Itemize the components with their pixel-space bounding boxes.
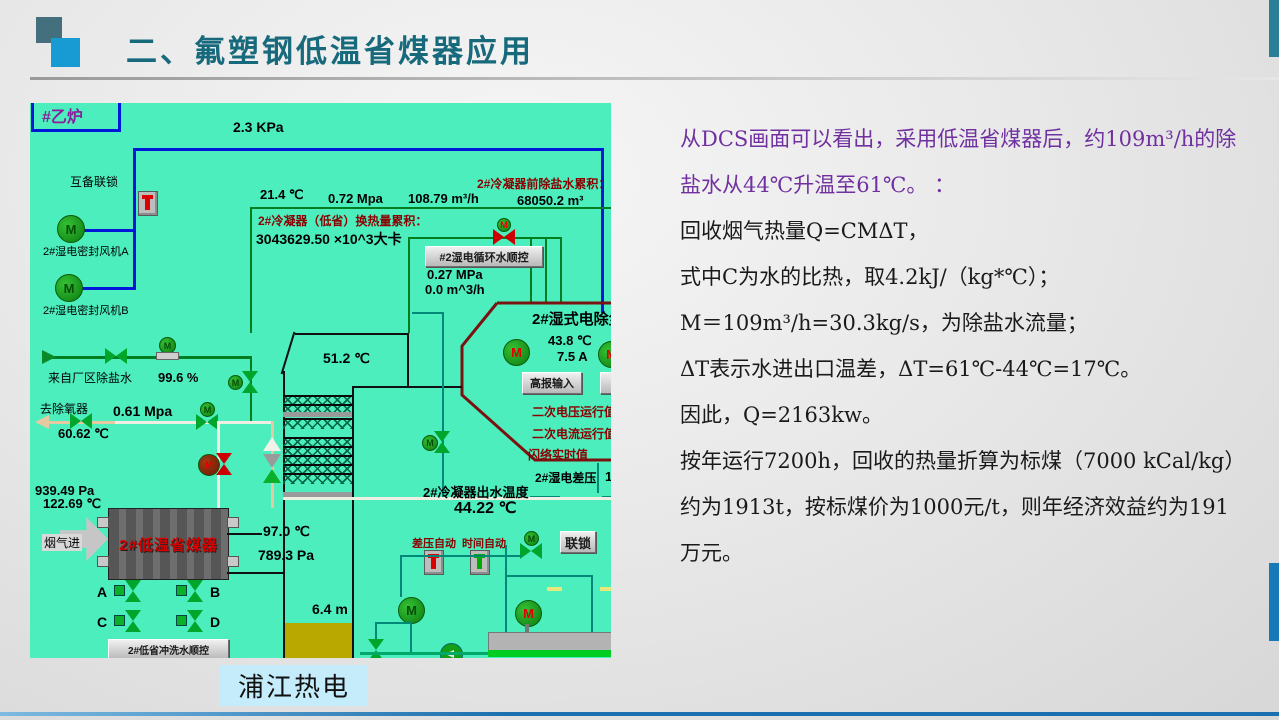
flow-108: 108.79 m³/h	[408, 191, 479, 206]
inlet-label: 来自厂区除盐水	[48, 369, 132, 386]
pressure-072: 0.72 Mpa	[328, 191, 383, 206]
pipe-green	[250, 207, 252, 333]
pipe-teal	[410, 621, 412, 653]
pipe-green	[560, 237, 562, 303]
time-auto-toggle[interactable]	[470, 550, 490, 575]
valve-b-label: B	[210, 584, 220, 600]
pipe-green	[545, 237, 547, 303]
pipe-teal	[505, 545, 507, 635]
time-auto-label: 时间自动	[462, 535, 506, 551]
tube-bar	[283, 412, 352, 417]
acc-heat-value: 3043629.50 ×10^3大卡	[256, 229, 402, 249]
flashover-label: 闪络实时值	[528, 446, 588, 463]
tube-bundle	[283, 418, 352, 429]
economizer-label: 2#低温省煤器	[119, 534, 218, 555]
analysis-line: 按年运行7200h，回收的热量折算为标煤（7000 kCal/kg）约为1913…	[680, 438, 1246, 576]
temp-97: 97.0 ℃	[263, 523, 310, 540]
esp-dp-label: 2#湿电差压	[535, 469, 596, 486]
boiler-tag: #乙炉	[42, 103, 83, 127]
level-value: 6.4 m	[312, 601, 348, 617]
pressure-789: 789.3 Pa	[258, 547, 314, 563]
clipped-button[interactable]	[600, 372, 611, 394]
pipe-blue	[82, 287, 135, 290]
flange	[97, 556, 109, 567]
page-title: 二、氟塑钢低温省煤器应用	[126, 26, 534, 71]
pipe-green	[408, 237, 560, 239]
condenser-wall	[407, 333, 409, 386]
valve-c-icon[interactable]	[125, 610, 141, 632]
pipe-teal	[412, 312, 442, 314]
pipe-blue	[601, 148, 604, 313]
temp-21: 21.4 ℃	[260, 187, 304, 203]
valve-d-indicator	[176, 615, 187, 626]
skid-base	[488, 650, 611, 657]
economizer: 2#低温省煤器	[108, 508, 229, 580]
pipe-green	[42, 356, 250, 359]
secondary-current-label: 二次电流运行值	[532, 425, 611, 442]
red-valve-icon[interactable]	[216, 453, 232, 475]
pipe-blue	[133, 148, 604, 151]
valve-a-icon[interactable]	[125, 580, 141, 602]
pipe-teal	[505, 575, 593, 577]
valve-a-indicator	[114, 585, 125, 596]
valve-b-indicator	[176, 585, 187, 596]
fan-b-label: 2#湿电密封风机B	[43, 302, 129, 318]
valve-icon[interactable]	[242, 371, 258, 393]
relief-arrow-icon	[263, 437, 281, 451]
pressure-top: 2.3 KPa	[233, 119, 284, 135]
esp-temp: 43.8 ℃	[548, 333, 592, 349]
secondary-voltage-label: 二次电压运行值	[532, 403, 611, 420]
acc-heat-label: 2#冷凝器（低省）换热量累积：	[258, 212, 427, 229]
duct-line	[352, 386, 462, 388]
interlock-toggle[interactable]	[138, 191, 158, 216]
flow-arrow-icon	[42, 350, 56, 364]
flue-gas-label: 烟气进	[42, 534, 82, 551]
tube-bundle	[283, 473, 352, 484]
pipe-teal	[442, 312, 444, 497]
flow-arrow-icon	[35, 415, 49, 429]
analysis-text: 从DCS画面可以看出，采用低温省煤器后，约109m³/h的除盐水从44℃升温至6…	[680, 116, 1246, 576]
temp-6062: 60.62 ℃	[58, 426, 109, 442]
analysis-line: ΔT表示水进出口温差，ΔT=61℃-44℃=17℃。	[680, 346, 1246, 392]
valve-d-label: D	[210, 614, 220, 630]
divider	[597, 463, 599, 493]
valve-base	[156, 352, 179, 360]
valve-c-label: C	[97, 614, 107, 630]
valve-d-icon[interactable]	[187, 610, 203, 632]
alarm-input-button[interactable]: 高报输入	[522, 372, 582, 394]
relief-valve-icon[interactable]	[263, 454, 281, 468]
valve-icon[interactable]	[105, 348, 127, 364]
esp-motor-icon[interactable]: M	[503, 339, 530, 366]
valve-position: 99.6 %	[158, 370, 198, 385]
relief-valve-icon[interactable]	[263, 469, 281, 483]
header-divider	[30, 77, 1279, 80]
pipe-teal	[400, 555, 522, 557]
temp-1226: 122.69 ℃	[43, 496, 101, 512]
edge-bar-top	[1269, 0, 1279, 57]
pipe-black	[227, 533, 262, 535]
flange	[227, 517, 239, 528]
dp-auto-toggle[interactable]	[424, 550, 444, 575]
fan-a-motor-icon[interactable]: M	[57, 215, 85, 243]
analysis-line: 回收烟气热量Q=CMΔT，	[680, 208, 1246, 254]
pipe-teal	[375, 622, 411, 624]
condenser-slant	[281, 332, 296, 375]
analysis-line: 因此，Q=2163kw。	[680, 392, 1246, 438]
temp-512: 51.2 ℃	[323, 350, 370, 367]
flow-00: 0.0 m^3/h	[425, 282, 485, 297]
slide: 二、氟塑钢低温省煤器应用 从DCS画面可以看出，采用低温省煤器后，约109m³/…	[0, 0, 1279, 720]
edge-bar-mid	[1269, 563, 1279, 641]
condenser-top	[295, 333, 407, 335]
acc-water-value: 68050.2 m³	[517, 193, 584, 208]
pipe-black	[227, 572, 285, 574]
pipe-blue	[133, 148, 136, 290]
valve-icon[interactable]	[520, 543, 542, 559]
acc-water-label: 2#冷凝器前除盐水累积：	[477, 175, 610, 192]
fan-a-label: 2#湿电密封风机A	[43, 243, 129, 259]
footer-line	[0, 712, 1279, 716]
pump-motor-icon[interactable]: M	[398, 597, 425, 624]
valve-a-label: A	[97, 584, 107, 600]
valve-icon[interactable]	[368, 639, 384, 658]
dp-auto-label: 差压自动	[412, 535, 456, 551]
condenser-wall	[352, 386, 354, 658]
flange	[97, 517, 109, 528]
valve-b-icon[interactable]	[187, 580, 203, 602]
esp-title: 2#湿式电除尘	[532, 308, 611, 329]
plant-caption: 浦江热电	[220, 665, 368, 706]
dcs-screenshot: #乙炉 2.3 KPa 互备联锁 M 2#湿电密封风机A M 2#湿电密封风机B…	[30, 103, 611, 658]
tank-level-fill	[285, 623, 352, 658]
fan-b-motor-icon[interactable]: M	[55, 274, 83, 302]
interlock-button[interactable]: 联锁	[560, 531, 596, 553]
pipe-white	[115, 421, 272, 424]
esp-dp-value: 1	[605, 469, 611, 484]
valve-icon[interactable]	[196, 414, 218, 430]
pump-icon[interactable]	[440, 643, 463, 658]
outlet-temp-value: 44.22 ℃	[454, 498, 516, 518]
red-valve-icon[interactable]	[493, 229, 515, 245]
boiler-tag-box: #乙炉	[31, 103, 121, 132]
pipe-green-light	[360, 652, 488, 655]
valve-c-indicator	[114, 615, 125, 626]
decor-square-blue	[51, 38, 80, 67]
circ-sequence-button[interactable]: #2湿电循环水顺控	[425, 246, 543, 267]
level-dash	[600, 587, 611, 591]
pipe-blue	[83, 229, 135, 232]
analysis-intro: 从DCS画面可以看出，采用低温省煤器后，约109m³/h的除盐水从44℃升温至6…	[680, 116, 1246, 208]
valve-icon[interactable]	[434, 431, 450, 453]
flange	[227, 556, 239, 567]
analysis-line: M＝109m³/h=30.3kg/s，为除盐水流量；	[680, 300, 1246, 346]
pump-motor-icon[interactable]: M	[515, 600, 542, 627]
level-dash	[547, 587, 562, 591]
purge-sequence-button[interactable]: 2#低省冲洗水顺控	[108, 639, 229, 658]
pressure-027: 0.27 MPa	[427, 267, 483, 282]
esp-current: 7.5 A	[557, 349, 588, 364]
analysis-line: 式中C为水的比热，取4.2kJ/（kg*℃）；	[680, 254, 1246, 300]
interlock-label: 互备联锁	[70, 173, 118, 190]
pipe-green	[408, 237, 410, 333]
deaerator-label: 去除氧器	[40, 400, 88, 417]
valve-motor-icon[interactable]: M	[228, 375, 243, 390]
pipe-teal	[400, 555, 402, 597]
pressure-061: 0.61 Mpa	[113, 403, 172, 419]
